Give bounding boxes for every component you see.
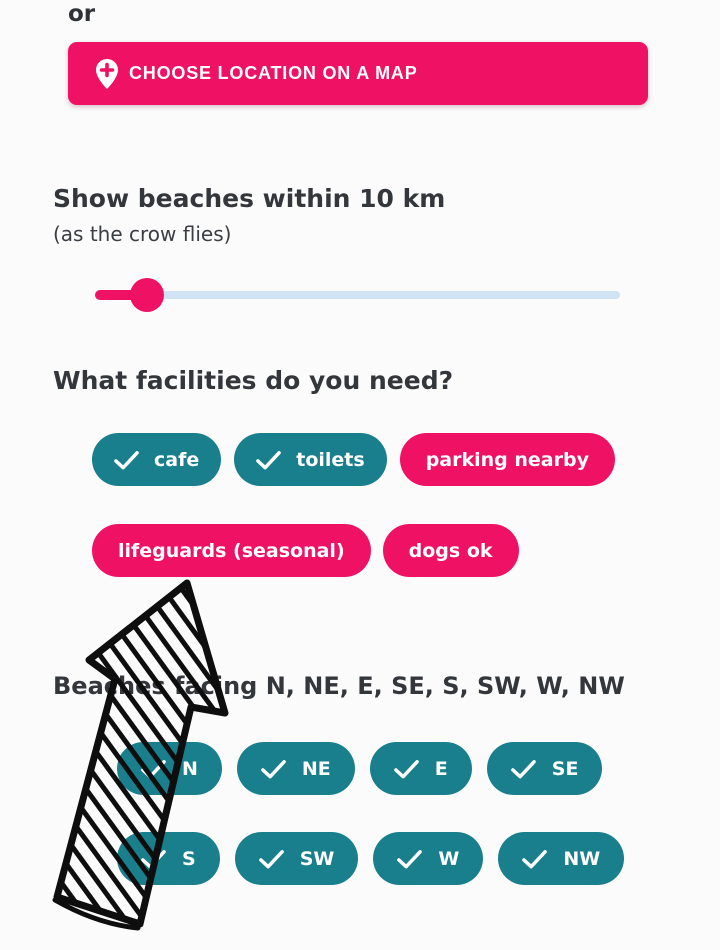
check-icon (522, 849, 547, 869)
choose-location-button-label: CHOOSE LOCATION ON A MAP (129, 63, 418, 84)
check-icon (141, 849, 166, 869)
check-icon (259, 849, 284, 869)
check-icon (256, 450, 281, 470)
direction-pill-e[interactable]: E (370, 742, 472, 795)
check-icon (397, 849, 422, 869)
direction-pill-se[interactable]: SE (487, 742, 603, 795)
direction-pill-nw[interactable]: NW (498, 832, 624, 885)
direction-pill-w[interactable]: W (373, 832, 483, 885)
or-label: or (68, 1, 95, 27)
facilities-row-2: lifeguards (seasonal) dogs ok (92, 524, 519, 577)
slider-track[interactable] (95, 291, 620, 299)
directions-title: Beaches facing N, NE, E, SE, S, SW, W, N… (53, 672, 625, 700)
pill-label: S (182, 848, 196, 870)
direction-pill-sw[interactable]: SW (235, 832, 359, 885)
pill-label: parking nearby (426, 449, 589, 471)
check-icon (141, 759, 166, 779)
direction-pill-ne[interactable]: NE (237, 742, 355, 795)
directions-row-1: N NE E SE (117, 742, 602, 795)
pill-label: SW (300, 848, 335, 870)
pill-label: dogs ok (409, 540, 493, 562)
direction-pill-s[interactable]: S (117, 832, 220, 885)
pill-label: toilets (296, 449, 364, 471)
check-icon (394, 759, 419, 779)
facility-pill-parking-nearby[interactable]: parking nearby (400, 433, 615, 486)
pill-label: W (438, 848, 459, 870)
check-icon (261, 759, 286, 779)
distance-title: Show beaches within 10 km (53, 184, 445, 213)
map-pin-plus-icon (95, 58, 119, 90)
facility-pill-toilets[interactable]: toilets (234, 433, 386, 486)
pill-label: N (182, 758, 198, 780)
pill-label: SE (552, 758, 579, 780)
directions-row-2: S SW W NW (117, 832, 624, 885)
pill-label: NE (302, 758, 331, 780)
facility-pill-cafe[interactable]: cafe (92, 433, 221, 486)
pill-label: cafe (154, 449, 199, 471)
pill-label: E (435, 758, 448, 780)
pill-label: NW (563, 848, 600, 870)
check-icon (114, 450, 139, 470)
facility-pill-dogs-ok[interactable]: dogs ok (383, 524, 519, 577)
distance-slider[interactable] (95, 278, 620, 312)
pill-label: lifeguards (seasonal) (118, 540, 345, 562)
choose-location-on-map-button[interactable]: CHOOSE LOCATION ON A MAP (68, 42, 648, 105)
direction-pill-n[interactable]: N (117, 742, 222, 795)
facility-pill-lifeguards-seasonal[interactable]: lifeguards (seasonal) (92, 524, 371, 577)
facilities-title: What facilities do you need? (53, 366, 453, 395)
slider-handle[interactable] (130, 278, 164, 312)
distance-subtitle: (as the crow flies) (53, 222, 231, 246)
check-icon (511, 759, 536, 779)
facilities-row-1: cafe toilets parking nearby (92, 433, 615, 486)
